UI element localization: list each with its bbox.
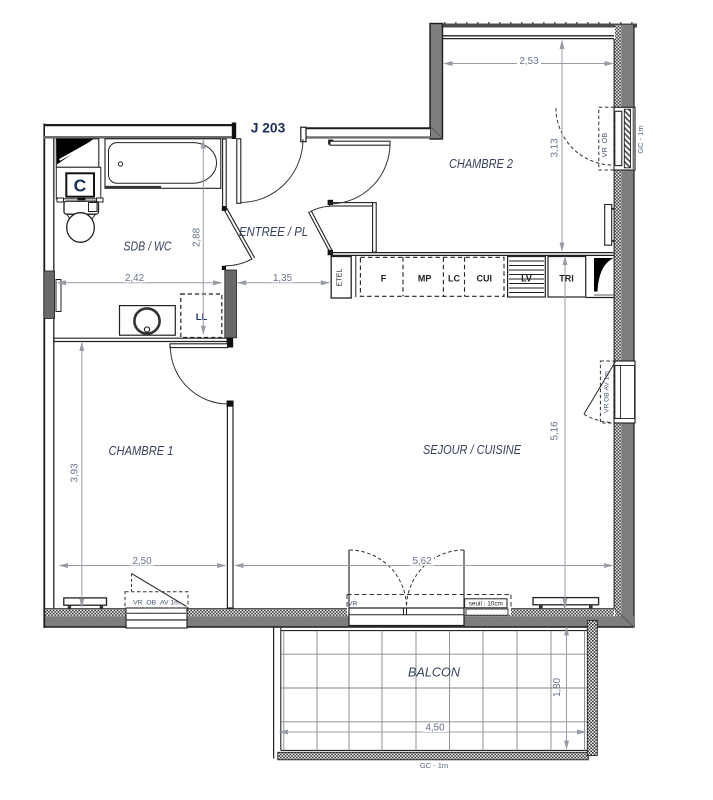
svg-text:LV: LV — [521, 274, 532, 284]
svg-text:5,16: 5,16 — [550, 421, 561, 441]
svg-text:BALCON: BALCON — [408, 665, 461, 680]
svg-text:F: F — [381, 274, 387, 284]
svg-text:2,42: 2,42 — [125, 273, 144, 284]
svg-text:GC - 1m: GC - 1m — [420, 761, 448, 770]
svg-text:SDB / WC: SDB / WC — [124, 239, 172, 254]
svg-text:MP: MP — [418, 274, 432, 284]
svg-text:4,50: 4,50 — [425, 723, 445, 734]
svg-text:CHAMBRE 1: CHAMBRE 1 — [109, 443, 174, 458]
svg-text:3,93: 3,93 — [70, 463, 81, 483]
svg-text:seuil : 10cm: seuil : 10cm — [469, 601, 503, 608]
svg-text:1,80: 1,80 — [552, 677, 563, 697]
svg-text:VR: VR — [348, 601, 358, 608]
svg-text:ETEL: ETEL — [335, 269, 344, 287]
svg-text:VR OB: VR OB — [600, 133, 609, 158]
svg-text:2,88: 2,88 — [192, 227, 203, 247]
svg-text:VR OB AV 1m: VR OB AV 1m — [133, 600, 180, 607]
svg-text:VR OB AV 1m: VR OB AV 1m — [604, 371, 611, 413]
svg-text:2,53: 2,53 — [519, 56, 539, 67]
svg-text:5,62: 5,62 — [412, 556, 431, 567]
svg-text:GC - 1m: GC - 1m — [636, 125, 645, 153]
svg-text:C: C — [74, 176, 87, 196]
svg-text:LL: LL — [196, 312, 208, 323]
svg-text:J 203: J 203 — [251, 121, 286, 136]
svg-text:2,50: 2,50 — [132, 556, 152, 567]
svg-text:SEJOUR / CUISINE: SEJOUR / CUISINE — [423, 442, 521, 457]
svg-text:CHAMBRE 2: CHAMBRE 2 — [449, 156, 514, 171]
svg-text:1,35: 1,35 — [273, 273, 293, 284]
svg-text:TRI: TRI — [559, 274, 574, 284]
svg-text:3,13: 3,13 — [550, 138, 561, 158]
svg-text:CUI: CUI — [477, 274, 493, 284]
svg-text:ENTREE / PL: ENTREE / PL — [239, 224, 308, 239]
svg-text:LC: LC — [448, 274, 460, 284]
